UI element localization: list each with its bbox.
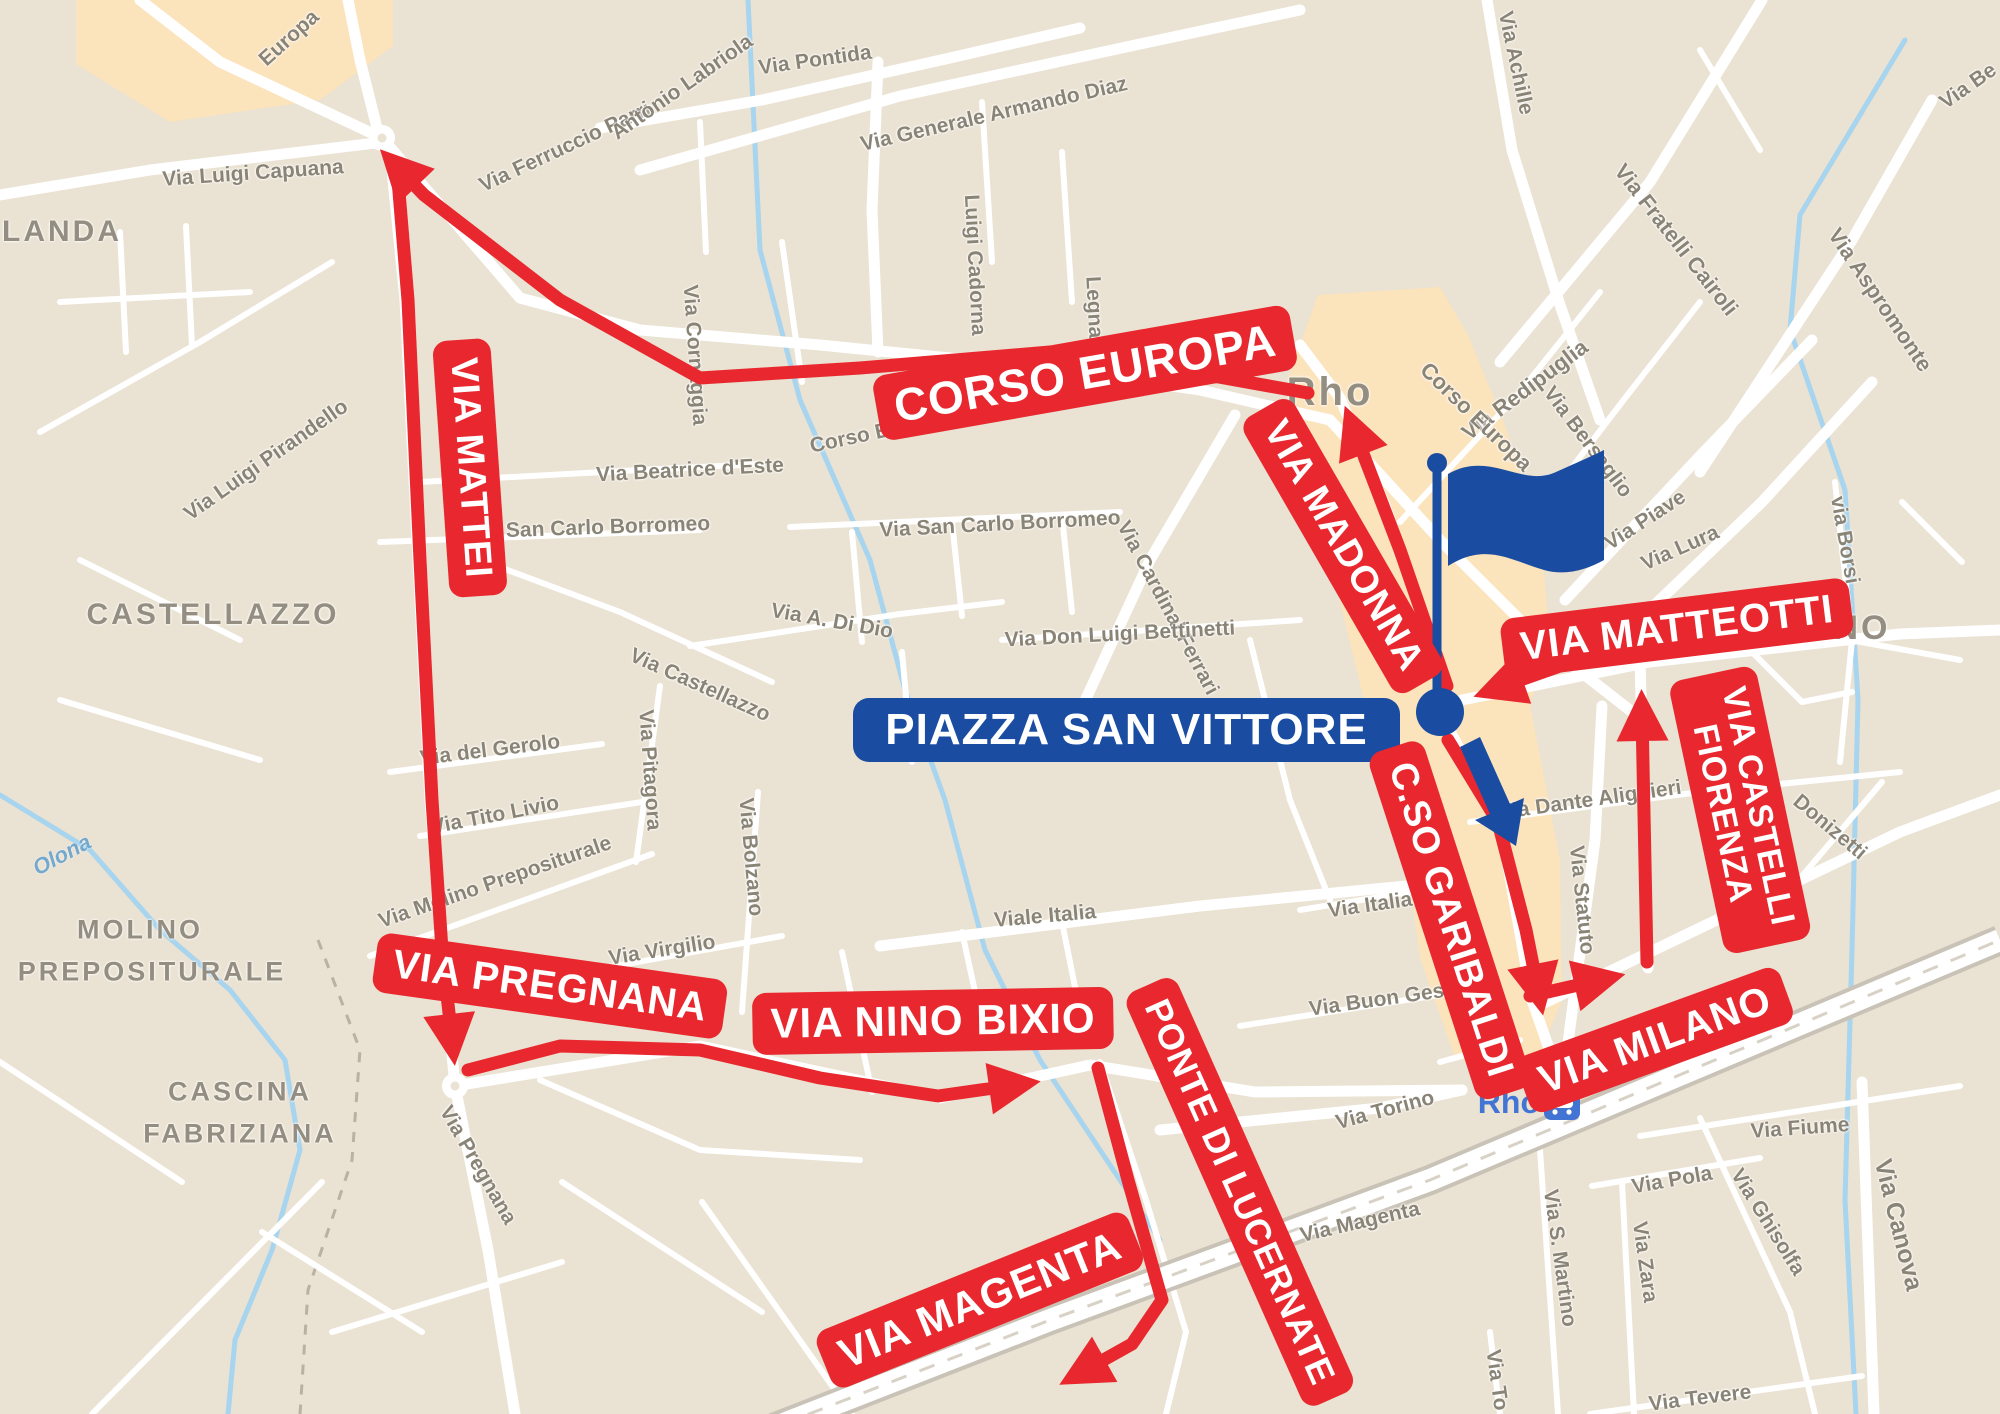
- route-label-via-magenta: VIA MAGENTA: [812, 1208, 1147, 1392]
- route-label-via-milano: VIA MILANO: [1513, 964, 1797, 1116]
- route-label-via-castelli-fiorenza: VIA CASTELLIFIORENZA: [1667, 664, 1812, 956]
- route-label-via-matteotti: VIA MATTEOTTI: [1499, 577, 1855, 679]
- route-labels-layer: PIAZZA SAN VITTORE CORSO EUROPAVIA MATTE…: [0, 0, 2000, 1414]
- route-label-corso-europa: CORSO EUROPA: [871, 304, 1299, 443]
- route-label-ponte-di-lucernate: PONTE DI LUCERNATE: [1122, 974, 1357, 1411]
- route-label-cso-garibaldi: C.SO GARIBALDI: [1366, 738, 1534, 1103]
- route-label-via-pregnana: VIA PREGNANA: [371, 932, 729, 1041]
- map-viewport: Via Luigi CapuanaVia Ferruccio ParriEuro…: [0, 0, 2000, 1414]
- piazza-san-vittore-label: PIAZZA SAN VITTORE: [853, 698, 1400, 762]
- route-label-via-nino-bixio: VIA NINO BIXIO: [752, 987, 1114, 1055]
- route-label-via-mattei: VIA MATTEI: [432, 338, 508, 599]
- route-label-via-madonna: VIA MADONNA: [1238, 394, 1447, 698]
